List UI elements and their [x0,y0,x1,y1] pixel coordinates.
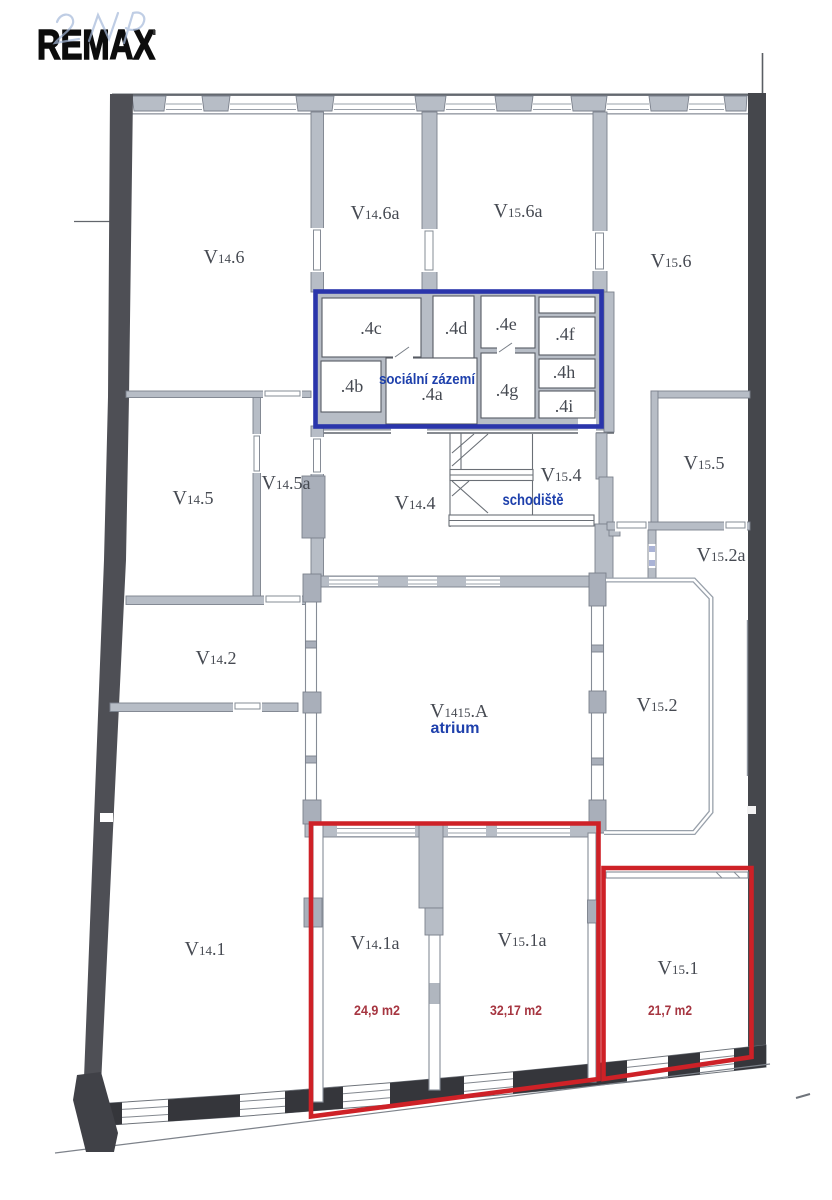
svg-text:atrium: atrium [431,720,480,737]
svg-text:.4d: .4d [445,318,468,338]
svg-text:24,9 m2: 24,9 m2 [354,1003,400,1018]
svg-text:schodiště: schodiště [503,492,564,509]
svg-text:.4f: .4f [555,324,575,344]
svg-text:.4c: .4c [360,318,382,338]
svg-text:.4a: .4a [421,384,443,404]
svg-text:.4h: .4h [553,362,576,382]
svg-text:.4g: .4g [496,380,519,400]
svg-text:21,7 m2: 21,7 m2 [648,1003,692,1018]
svg-text:.4i: .4i [555,396,574,416]
svg-text:.4b: .4b [341,376,364,396]
svg-text:.4e: .4e [495,314,517,334]
svg-text:32,17 m2: 32,17 m2 [490,1003,542,1018]
